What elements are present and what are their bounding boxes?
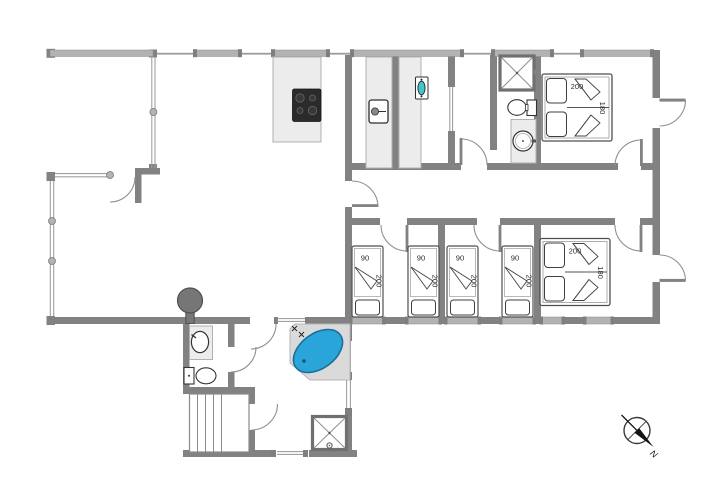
bed-length-label: 200 [525, 275, 534, 288]
pillow [545, 277, 565, 302]
toilet-icon [508, 100, 537, 116]
bed-depth-label: 180 [596, 266, 605, 279]
door-arc-single-room-west [381, 225, 407, 251]
floorplan-canvas: 200 180 90 200 90 200 90 200 90 200 [0, 0, 718, 479]
door-arc-terrace-top [660, 100, 686, 126]
bed-width-label: 90 [456, 254, 464, 263]
floorplan-drawing: 200 180 90 200 90 200 90 200 90 200 [0, 0, 718, 479]
single-bed-2: 90 200 [408, 246, 440, 317]
utility-counter-right [399, 57, 421, 168]
door-arc-stairs-room [252, 404, 278, 430]
double-bed-top: 200 180 [542, 74, 612, 141]
door-leaf [460, 138, 463, 165]
bed-length-label: 200 [375, 275, 384, 288]
door-leaf [640, 139, 643, 166]
bathroom-bottom [184, 321, 351, 452]
kitchen-area [273, 57, 321, 142]
bed-width-label: 90 [417, 254, 425, 263]
compass-north-label: N [648, 448, 660, 460]
door-leaf [660, 279, 686, 282]
shower-icon [500, 56, 539, 90]
shower-icon [313, 417, 347, 450]
door-leaf [640, 225, 643, 252]
door-leaf [660, 99, 686, 102]
single-bed-1: 90 200 [352, 246, 384, 317]
door-leaf [352, 204, 378, 207]
pillow [412, 300, 436, 315]
washing-machine-icon [369, 100, 388, 123]
spa-bath-icon [285, 321, 350, 382]
washbasin-icon [190, 326, 213, 360]
bed-length-label: 200 [470, 275, 479, 288]
door-arc-bedroom-bottom [615, 225, 641, 251]
door-arc-wc [231, 347, 256, 372]
door-arc-spa-room [251, 324, 276, 349]
pillow [451, 300, 475, 315]
single-bed-4: 90 200 [502, 246, 534, 317]
door-arc-entry [110, 177, 135, 202]
stairs-icon [190, 394, 250, 452]
door-arc-hall [352, 181, 378, 207]
washbasin-icon [511, 120, 536, 164]
door-leaf [499, 225, 502, 252]
door-arc-corridor [461, 139, 487, 165]
compass-icon: N [622, 415, 660, 460]
door-arc-terrace-bottom [660, 255, 686, 281]
pillow [545, 243, 565, 268]
bed-depth-label: 180 [598, 102, 607, 115]
double-bed-bottom: 200 180 [540, 239, 610, 306]
pillow [547, 79, 567, 104]
bed-width-label: 200 [569, 247, 582, 256]
bathroom-top [500, 56, 539, 163]
utility-sink-icon [416, 77, 429, 99]
bed-width-label: 90 [361, 254, 369, 263]
cooktop-icon [293, 89, 322, 122]
bed-length-label: 200 [431, 275, 440, 288]
pillow [547, 112, 567, 137]
pillow [356, 300, 380, 315]
single-bed-3: 90 200 [447, 246, 479, 317]
bed-width-label: 200 [571, 82, 584, 91]
toilet-icon [184, 368, 216, 385]
bed-width-label: 90 [511, 254, 519, 263]
door-arc-bedroom-top [615, 140, 641, 166]
pillow [506, 300, 530, 315]
